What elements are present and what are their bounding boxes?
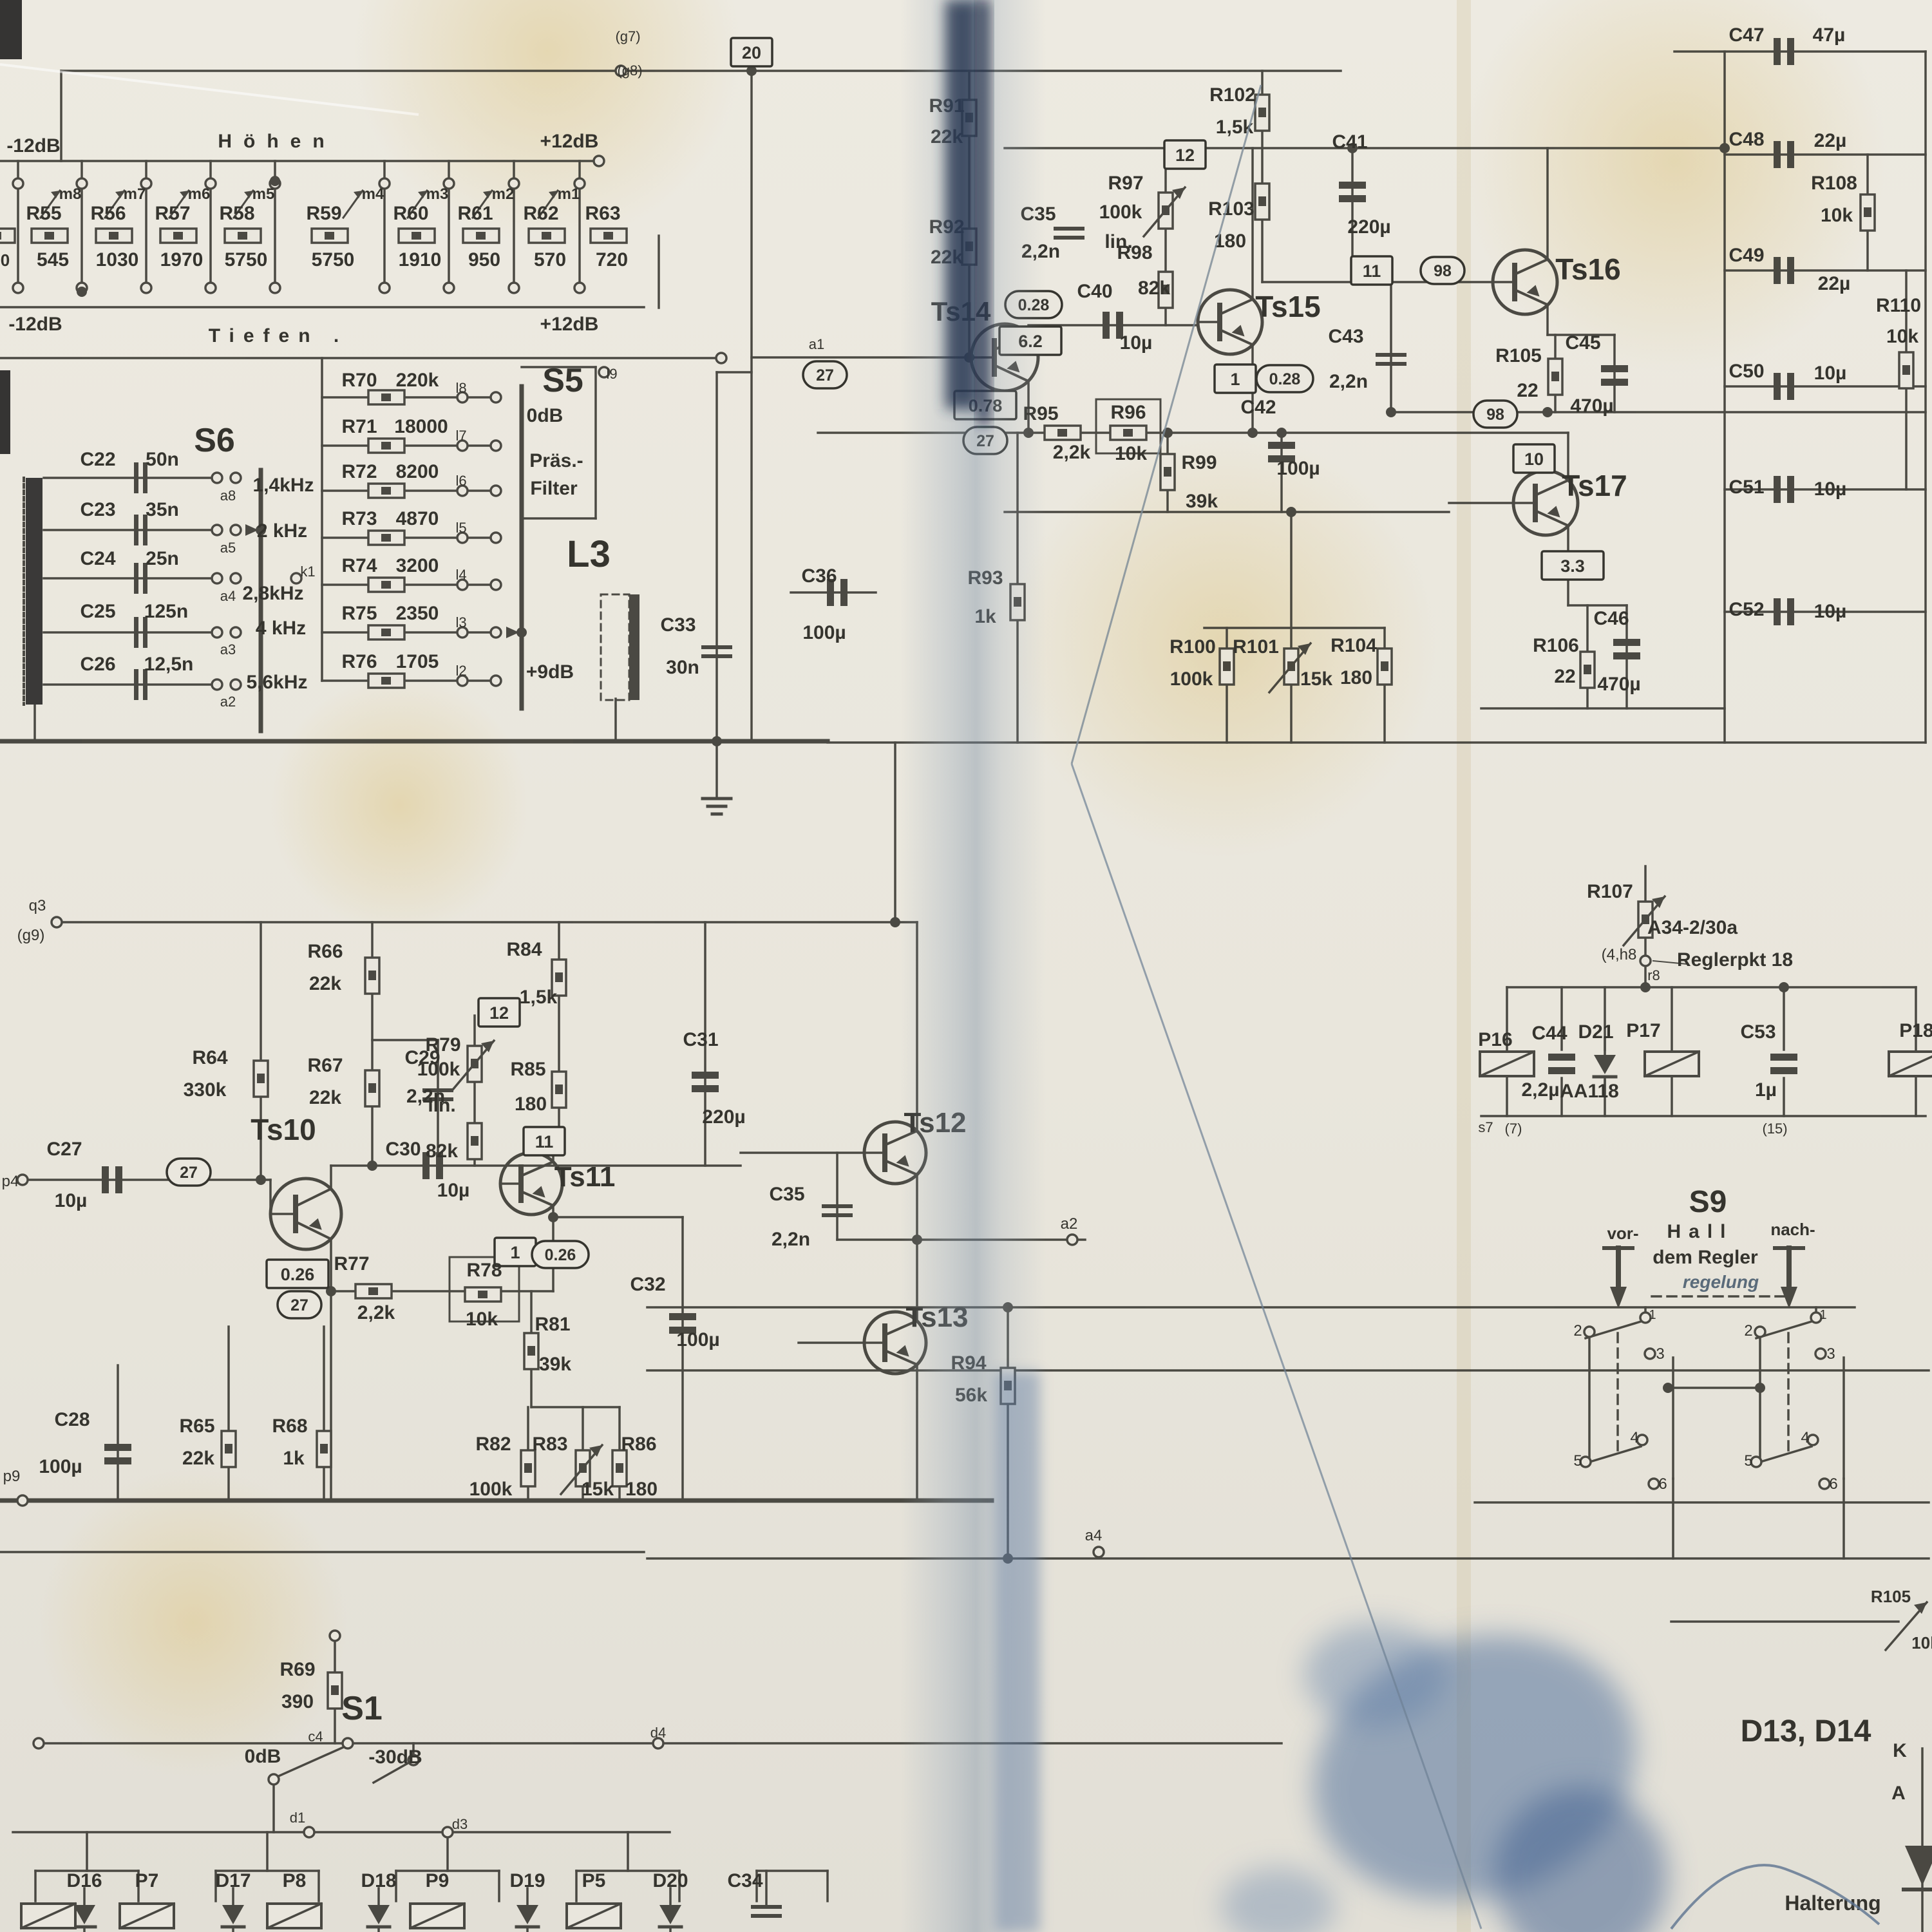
schematic-label: r8 xyxy=(1647,967,1660,983)
relay-coil xyxy=(1645,1052,1699,1076)
schematic-label: Halterung xyxy=(1785,1891,1880,1915)
schematic-label: R61 xyxy=(457,203,493,224)
schematic-label: -12dB xyxy=(8,314,62,335)
schematic-label: 4 kHz xyxy=(256,618,306,639)
schematic-label: C49 xyxy=(1728,245,1764,266)
schematic-label: 10µ xyxy=(1814,363,1847,384)
schematic-label: 10k xyxy=(1821,205,1853,226)
schematic-label: R85 xyxy=(510,1059,545,1080)
relay-coil xyxy=(567,1904,621,1928)
schematic-label: 22 xyxy=(1554,666,1575,687)
schematic-label: +12dB xyxy=(540,314,599,335)
contact-circle xyxy=(1755,1327,1765,1337)
schematic-label: 22k xyxy=(309,1087,341,1108)
schematic-label: L3 xyxy=(567,533,611,575)
schematic-label: R103 xyxy=(1208,198,1255,220)
junction-dot xyxy=(1386,407,1396,417)
resistor xyxy=(225,229,261,243)
badge-text: 10 xyxy=(1524,450,1544,469)
resistor xyxy=(96,229,132,243)
schematic-label: D21 xyxy=(1578,1021,1613,1043)
schematic-label: l6 xyxy=(455,473,466,489)
contact-circle xyxy=(1067,1235,1077,1245)
schematic-label: R72 xyxy=(341,461,377,482)
schematic-label: 2,2µ xyxy=(1522,1079,1560,1101)
schematic-label: R101 xyxy=(1233,636,1279,658)
badge-text: 11 xyxy=(1363,261,1381,281)
contact-circle xyxy=(231,573,241,583)
resistor xyxy=(365,1070,379,1106)
contact-circle xyxy=(1640,956,1651,966)
schematic-label: 12,5n xyxy=(144,654,194,675)
schematic-label: (4,h8 xyxy=(1602,946,1637,963)
schematic-label: +9dB xyxy=(526,661,574,683)
schematic-label: R108 xyxy=(1811,173,1857,194)
schematic-label: 6 xyxy=(1658,1475,1667,1493)
schematic-label: R66 xyxy=(307,941,343,962)
schematic-label: vor- xyxy=(1607,1224,1638,1243)
relay-coil xyxy=(410,1904,464,1928)
schematic-label: C30 xyxy=(385,1139,421,1160)
schematic-label: R97 xyxy=(1108,173,1143,194)
schematic-label: m5 xyxy=(252,185,275,203)
schematic-label: R69 xyxy=(279,1659,315,1680)
schematic-label: C44 xyxy=(1531,1023,1567,1044)
contact-circle xyxy=(442,1827,453,1837)
schematic-label: 39k xyxy=(539,1354,571,1375)
schematic-label: R96 xyxy=(1110,402,1146,423)
resistor xyxy=(1160,454,1175,490)
schematic-canvas: 20121116.20.78103.3121110.26270.28270.28… xyxy=(0,0,1932,1932)
contact-circle xyxy=(491,486,501,496)
schematic-label: 2 xyxy=(1744,1322,1752,1340)
schematic-label: 10k xyxy=(1886,326,1918,347)
schematic-label: 220µ xyxy=(702,1106,745,1128)
schematic-label: 100k xyxy=(1099,202,1142,223)
schematic-label: R79 xyxy=(425,1034,460,1056)
schematic-sheet: 20121116.20.78103.3121110.26270.28270.28… xyxy=(0,0,1932,1932)
contact-circle xyxy=(33,1738,44,1748)
schematic-label: a4 xyxy=(220,588,236,604)
schematic-label: 8200 xyxy=(396,461,439,482)
contact-circle xyxy=(1645,1349,1655,1359)
resistor xyxy=(368,674,404,688)
schematic-label: 545 xyxy=(37,249,69,270)
contact-circle xyxy=(1094,1547,1104,1557)
schematic-label: 1910 xyxy=(399,249,442,270)
schematic-label: R57 xyxy=(155,203,190,224)
schematic-label: K xyxy=(1893,1740,1907,1761)
schematic-label: Höhen xyxy=(218,131,336,152)
junction-dot xyxy=(1247,428,1258,438)
schematic-label: R55 xyxy=(26,203,61,224)
junction-dot xyxy=(1755,1383,1765,1393)
badge-text: 1 xyxy=(1230,370,1240,389)
schematic-label: 125n xyxy=(144,601,188,622)
schematic-label: 10k xyxy=(1115,443,1147,464)
contact-circle xyxy=(231,627,241,638)
schematic-label: 2 xyxy=(1573,1322,1582,1340)
schematic-label: 10µ xyxy=(1814,478,1847,500)
schematic-label: R98 xyxy=(1117,242,1152,263)
schematic-label: 100µ xyxy=(676,1329,719,1350)
schematic-label: R102 xyxy=(1209,84,1256,106)
relay-coil xyxy=(1889,1052,1932,1076)
resistor xyxy=(355,1284,392,1298)
schematic-label: A34-2/30a xyxy=(1647,917,1738,938)
junction-dot xyxy=(1542,407,1553,417)
schematic-label: R106 xyxy=(1533,635,1579,656)
schematic-label: a5 xyxy=(220,540,236,556)
schematic-label: 220k xyxy=(396,370,439,391)
schematic-label: 10k xyxy=(466,1309,498,1330)
schematic-label: A xyxy=(1891,1783,1906,1804)
schematic-label: p4 xyxy=(2,1173,19,1190)
schematic-label: c4 xyxy=(308,1728,323,1745)
schematic-label: Präs.- xyxy=(529,450,583,471)
resistor xyxy=(365,958,379,994)
value-badge-box: 10 xyxy=(1513,444,1555,473)
schematic-label: l5 xyxy=(455,520,466,536)
schematic-label: 180 xyxy=(1340,667,1372,688)
schematic-label: R73 xyxy=(341,508,377,529)
schematic-label: 22 xyxy=(1517,380,1538,401)
contact-circle xyxy=(491,580,501,590)
schematic-label: 1 xyxy=(1819,1308,1826,1322)
schematic-label: 0dB xyxy=(245,1746,281,1767)
resistor xyxy=(612,1450,627,1486)
schematic-label: R77 xyxy=(334,1253,369,1274)
schematic-label: R56 xyxy=(90,203,126,224)
schematic-label: 39k xyxy=(1186,491,1218,512)
junction-dot xyxy=(1779,982,1789,992)
schematic-label: 82k xyxy=(426,1141,458,1162)
value-badge-oval: 98 xyxy=(1421,257,1464,284)
schematic-label: 22k xyxy=(309,973,341,994)
schematic-label: 47µ xyxy=(1813,24,1846,46)
schematic-label: a8 xyxy=(220,488,236,504)
contact-circle xyxy=(13,178,23,189)
schematic-label: q3 xyxy=(29,897,46,914)
schematic-label: l8 xyxy=(455,380,466,396)
schematic-label: C43 xyxy=(1328,326,1363,347)
schematic-label: 5,6kHz xyxy=(246,672,307,693)
schematic-label: 3200 xyxy=(396,555,439,576)
schematic-label: (g8) xyxy=(617,62,642,79)
badge-text: 98 xyxy=(1434,262,1452,280)
resistor xyxy=(32,229,68,243)
schematic-label: C50 xyxy=(1728,361,1764,382)
schematic-label: m8 xyxy=(59,185,82,203)
contact-circle xyxy=(574,283,585,293)
resistor xyxy=(524,1333,538,1369)
contact-circle xyxy=(594,156,604,166)
schematic-label: 22µ xyxy=(1814,130,1847,151)
schematic-label: 5 xyxy=(1744,1452,1752,1470)
contact-circle xyxy=(1815,1349,1826,1359)
contact-circle xyxy=(304,1827,314,1837)
badge-text: 11 xyxy=(535,1132,554,1151)
relay-coil xyxy=(21,1904,75,1928)
junction-dot xyxy=(270,176,280,186)
contact-circle xyxy=(205,283,216,293)
resistor xyxy=(0,229,15,243)
junction-dot xyxy=(1286,507,1296,517)
schematic-label: C45 xyxy=(1565,332,1600,354)
schematic-label: 10k xyxy=(1911,1633,1932,1653)
badge-text: 12 xyxy=(1175,146,1195,165)
schematic-label: a3 xyxy=(220,641,236,658)
schematic-label: m3 xyxy=(426,185,449,203)
schematic-label: 4 xyxy=(1630,1429,1638,1446)
schematic-label: R60 xyxy=(393,203,428,224)
contact-circle xyxy=(491,676,501,686)
resistor xyxy=(368,531,404,545)
resistor xyxy=(1220,649,1234,685)
schematic-label: Ts11 xyxy=(554,1161,616,1193)
schematic-label: 2350 xyxy=(396,603,439,624)
schematic-label: P9 xyxy=(426,1870,450,1891)
schematic-label: 100k xyxy=(469,1479,513,1500)
resistor xyxy=(1045,426,1081,440)
contact-circle xyxy=(141,283,151,293)
badge-text: 98 xyxy=(1486,406,1504,424)
schematic-label: 25n xyxy=(146,548,179,569)
resistor xyxy=(521,1450,535,1486)
schematic-label: P18 xyxy=(1899,1020,1932,1041)
schematic-label: 2,8kHz xyxy=(242,583,303,604)
schematic-label: lin. xyxy=(428,1095,455,1116)
resistor xyxy=(1110,426,1146,440)
schematic-label: 5 xyxy=(1573,1452,1582,1470)
resistor xyxy=(465,1287,501,1302)
schematic-label: 1030 xyxy=(96,249,139,270)
schematic-label: R76 xyxy=(341,651,377,672)
schematic-label: AA118 xyxy=(1560,1081,1619,1102)
resistor xyxy=(1899,352,1913,388)
schematic-label: 100k xyxy=(1170,668,1213,690)
schematic-label: C52 xyxy=(1728,599,1764,620)
schematic-label: 180 xyxy=(625,1479,658,1500)
resistor xyxy=(463,229,499,243)
schematic-label: C32 xyxy=(630,1274,665,1295)
schematic-label: 82k xyxy=(1138,278,1170,299)
contact-circle xyxy=(379,283,390,293)
schematic-label: R82 xyxy=(475,1434,511,1455)
contact-circle xyxy=(1649,1479,1659,1489)
schematic-label: Ts17 xyxy=(1562,469,1627,502)
schematic-label: Ts15 xyxy=(1255,290,1320,323)
resistor xyxy=(399,229,435,243)
schematic-label: P7 xyxy=(135,1870,159,1891)
schematic-label: C25 xyxy=(80,601,115,622)
value-badge-box: 0.26 xyxy=(267,1260,328,1288)
ink-stain xyxy=(945,0,979,409)
resistor xyxy=(368,625,404,639)
value-badge-box: 20 xyxy=(731,38,772,66)
paper-stain xyxy=(270,676,528,934)
schematic-label: p9 xyxy=(3,1468,21,1485)
relay-coil xyxy=(267,1904,321,1928)
edge-mark xyxy=(0,0,22,59)
schematic-label: R71 xyxy=(341,416,377,437)
schematic-label: C36 xyxy=(801,565,837,587)
schematic-label: 100k xyxy=(417,1059,460,1080)
schematic-label: R62 xyxy=(523,203,558,224)
schematic-label: C28 xyxy=(54,1409,90,1430)
schematic-label: P17 xyxy=(1626,1020,1660,1041)
schematic-label: 1970 xyxy=(160,249,204,270)
schematic-label: 3 xyxy=(1656,1345,1664,1363)
value-badge-oval: 98 xyxy=(1473,401,1517,428)
value-badge-box: 3.3 xyxy=(1542,551,1604,580)
contact-circle xyxy=(491,392,501,402)
contact-circle xyxy=(491,627,501,638)
resistor xyxy=(328,1672,342,1709)
schematic-label: 22µ xyxy=(1818,273,1851,294)
schematic-label: S6 xyxy=(194,422,235,459)
resistor xyxy=(1378,649,1392,685)
schematic-label: R64 xyxy=(192,1047,227,1068)
schematic-label: P5 xyxy=(582,1870,606,1891)
value-badge-oval: 0.28 xyxy=(1256,365,1313,392)
schematic-label: R74 xyxy=(341,555,377,576)
value-badge-oval: 27 xyxy=(803,361,847,388)
schematic-label: a1 xyxy=(809,336,824,352)
schematic-label: a2 xyxy=(1061,1215,1078,1233)
schematic-label: l4 xyxy=(455,567,466,583)
resistor xyxy=(312,229,348,243)
schematic-label: R100 xyxy=(1170,636,1216,658)
contact-circle xyxy=(212,473,222,483)
schematic-label: m6 xyxy=(188,185,211,203)
schematic-label: a2 xyxy=(220,694,236,710)
schematic-label: C42 xyxy=(1240,397,1276,418)
resistor xyxy=(1255,184,1269,220)
relay-coil xyxy=(120,1904,174,1928)
schematic-label: m4 xyxy=(362,185,384,203)
badge-text: 12 xyxy=(489,1003,509,1023)
contact-circle xyxy=(330,1631,340,1641)
resistor xyxy=(254,1061,268,1097)
schematic-label: 10µ xyxy=(437,1180,470,1201)
schematic-label: S9 xyxy=(1689,1185,1727,1219)
schematic-label: C40 xyxy=(1077,281,1112,302)
schematic-label: 100µ xyxy=(802,622,846,643)
schematic-label: Reglerpkt 18 xyxy=(1677,949,1793,971)
badge-text: 20 xyxy=(742,43,761,62)
resistor xyxy=(1861,194,1875,231)
schematic-label: D16 xyxy=(66,1870,102,1891)
schematic-label: D13, D14 xyxy=(1741,1714,1871,1748)
schematic-label: R75 xyxy=(341,603,377,624)
schematic-label: d4 xyxy=(650,1725,666,1741)
schematic-label: D17 xyxy=(215,1870,251,1891)
junction-dot xyxy=(548,1212,558,1222)
contact-circle xyxy=(212,525,222,535)
schematic-label: (g7) xyxy=(615,28,640,44)
schematic-label: m2 xyxy=(492,185,515,203)
value-badge-oval: 27 xyxy=(278,1291,321,1318)
schematic-label: 2,2k xyxy=(357,1302,395,1323)
schematic-label: R83 xyxy=(532,1434,567,1455)
schematic-label: R81 xyxy=(535,1314,570,1335)
contact-circle xyxy=(1584,1327,1595,1337)
resistor xyxy=(368,390,404,404)
value-badge-box: 11 xyxy=(524,1127,565,1155)
schematic-label: C34 xyxy=(727,1870,762,1891)
schematic-label: l7 xyxy=(455,428,466,444)
schematic-label: 4870 xyxy=(396,508,439,529)
resistor xyxy=(368,484,404,498)
edge-mark xyxy=(0,370,10,454)
resistor xyxy=(468,1123,482,1159)
schematic-label: S5 xyxy=(542,362,583,399)
ink-stain xyxy=(979,0,989,425)
schematic-label: R107 xyxy=(1587,881,1633,902)
contact-circle xyxy=(231,473,241,483)
schematic-label: 1,4kHz xyxy=(252,475,314,496)
schematic-label: R99 xyxy=(1181,452,1217,473)
schematic-label: 330k xyxy=(184,1079,227,1101)
schematic-label: l2 xyxy=(455,663,466,679)
junction-dot xyxy=(1276,428,1287,438)
schematic-label: nach- xyxy=(1770,1220,1815,1239)
schematic-label: R63 xyxy=(585,203,620,224)
schematic-label: D20 xyxy=(652,1870,688,1891)
schematic-label: d3 xyxy=(452,1816,468,1832)
badge-text: 27 xyxy=(290,1296,308,1314)
value-badge-oval: 0.26 xyxy=(532,1241,589,1268)
schematic-label: 4 xyxy=(1801,1429,1809,1446)
schematic-label: C26 xyxy=(80,654,115,675)
schematic-label: 1,5k xyxy=(520,987,558,1008)
schematic-label: P16 xyxy=(1478,1029,1512,1050)
contact-circle xyxy=(212,679,222,690)
schematic-label: 180 xyxy=(515,1094,547,1115)
badge-text: 27 xyxy=(180,1164,198,1182)
contact-circle xyxy=(17,1175,28,1185)
resistor xyxy=(160,229,196,243)
value-badge-oval: 27 xyxy=(167,1159,211,1186)
schematic-label: D19 xyxy=(509,1870,545,1891)
schematic-label: P8 xyxy=(283,1870,307,1891)
contact-circle xyxy=(212,573,222,583)
relay-coil xyxy=(1480,1052,1534,1076)
schematic-label: 1µ xyxy=(1755,1079,1777,1101)
schematic-label: R105 xyxy=(1871,1587,1911,1606)
schematic-label: 10µ xyxy=(1120,332,1153,354)
contact-circle xyxy=(444,283,454,293)
schematic-label: 470µ xyxy=(1570,395,1613,417)
schematic-label: s7 xyxy=(1478,1119,1493,1135)
schematic-label: 1705 xyxy=(396,651,439,672)
schematic-label: m1 xyxy=(558,185,580,203)
contact-circle xyxy=(212,627,222,638)
value-badge-box: 1 xyxy=(1215,365,1256,393)
schematic-label: 5750 xyxy=(312,249,355,270)
schematic-label: C48 xyxy=(1728,129,1764,150)
value-badge-box: 12 xyxy=(1164,140,1206,169)
junction-dot xyxy=(367,1160,377,1171)
schematic-label: C35 xyxy=(769,1184,804,1205)
schematic-label: (g9) xyxy=(17,927,45,944)
resistor xyxy=(529,229,565,243)
schematic-label: 2,2k xyxy=(1053,442,1091,463)
schematic-label: 2 kHz xyxy=(257,520,307,542)
schematic-label: 15k xyxy=(582,1479,614,1500)
schematic-label: -30dB xyxy=(368,1747,422,1768)
